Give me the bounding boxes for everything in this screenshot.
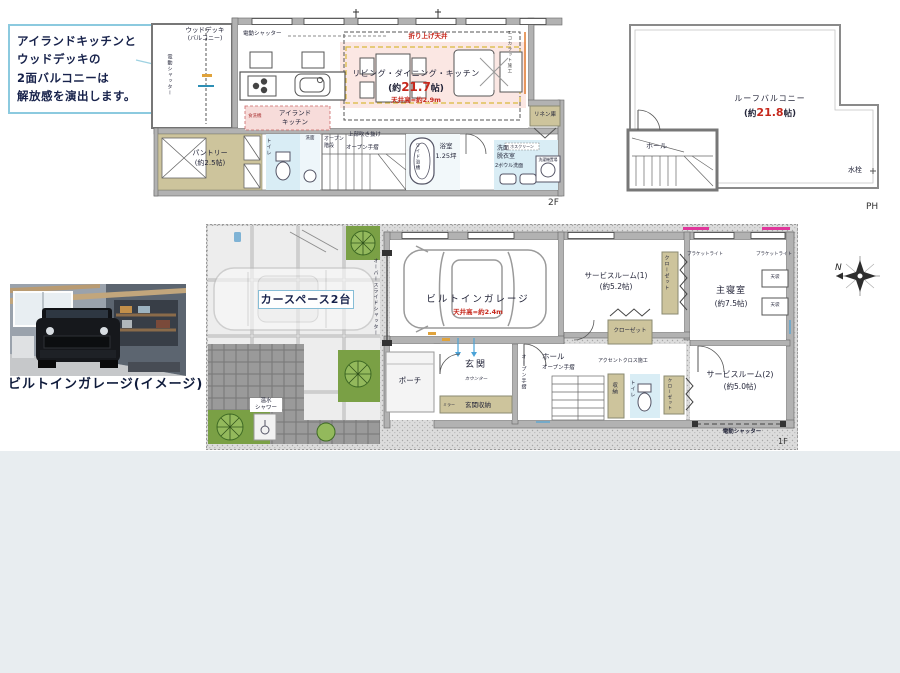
floor1-plan: カースペース2台 温水 シャワー オーバースライドシャッター ビルトインガレージ… bbox=[206, 224, 798, 450]
ldk-label: リビング・ダイニング・キッチン bbox=[326, 69, 506, 79]
storage-label: 収納 bbox=[610, 382, 617, 412]
toilet-1f-label: トイレ bbox=[629, 380, 636, 414]
closet-mid-label: クローゼット bbox=[608, 328, 652, 335]
penthouse-plan: ルーフバルコニー (約21.8帖) ホール 水栓 PH bbox=[622, 18, 892, 216]
hall-1f-label: ホール bbox=[542, 352, 565, 362]
open-stairs-label-1: オープン bbox=[324, 136, 344, 143]
ph-size-value: 21.8 bbox=[756, 106, 783, 119]
stairs-1f bbox=[552, 376, 604, 420]
callout-line-1: アイランドキッチンと bbox=[17, 32, 145, 50]
porch-label: ポーチ bbox=[388, 376, 432, 386]
master-bedroom-label: 主寝室 bbox=[700, 286, 762, 298]
suv-icon bbox=[36, 308, 120, 368]
ph-size-pre: (約 bbox=[744, 109, 756, 119]
roof-balcony-label: ルーフバルコニー bbox=[710, 94, 830, 104]
hot-shower-label-2: シャワー bbox=[250, 405, 282, 412]
callout-line-4: 解放感を演出します。 bbox=[17, 87, 145, 105]
ph-hall-label: ホール bbox=[646, 142, 667, 151]
window-markers bbox=[353, 9, 441, 18]
linen-label: リネン庫 bbox=[530, 112, 560, 119]
wood-deck-label: ウッドデッキ bbox=[174, 26, 236, 34]
coffered-ceiling-label: 折り上げ天井 bbox=[378, 32, 478, 40]
tenbukuro-label-2: 天袋 bbox=[762, 303, 788, 309]
callout-line-3: 2面バルコニーは bbox=[17, 69, 145, 87]
island-kitchen-label-1: アイランド bbox=[264, 109, 326, 117]
bracket-light-right-label: ブラケットライト bbox=[750, 252, 798, 258]
open-handrail-2f-label: オープン手摺 bbox=[346, 145, 379, 152]
wide-tub-label: ワイド浴槽 bbox=[414, 143, 420, 183]
open-stairs-label-2: 階段 bbox=[324, 143, 334, 150]
wash-nook-label: 洗面 bbox=[300, 136, 320, 142]
callout-box: アイランドキッチンと ウッドデッキの 2面バルコニーは 解放感を演出します。 bbox=[8, 24, 154, 114]
ph-size-post: 帖) bbox=[784, 109, 796, 119]
bracket-light-mark-left bbox=[683, 227, 709, 230]
ph-name-label: PH bbox=[866, 202, 878, 214]
pantry-label: パントリー bbox=[166, 149, 254, 158]
washroom-label-1: 洗面 bbox=[497, 145, 509, 153]
garage-ceiling-label: 天井高=約2.4m bbox=[418, 308, 538, 316]
roof-balcony-size: (約21.8帖) bbox=[710, 106, 830, 120]
bracket-light-mark-right bbox=[762, 227, 790, 230]
compass-icon: N bbox=[834, 254, 882, 298]
floor2-plan: ウッドデッキ (バルコニー) 電動シャッター 電動シャッター 折り上げ天井 リビ… bbox=[148, 6, 572, 211]
builtin-garage-label: ビルトインガレージ bbox=[418, 294, 538, 306]
shutter-left-label: 電動シャッター bbox=[166, 54, 173, 114]
compass-north-letter: N bbox=[835, 263, 842, 273]
dishwasher-label: 食洗機 bbox=[248, 114, 262, 120]
ph-stair-block bbox=[628, 130, 717, 190]
toilet-2f-label: トイレ bbox=[265, 138, 272, 178]
service-room2-label: サービスルーム(2) bbox=[692, 370, 788, 380]
master-bedroom-size: (約7.5帖) bbox=[696, 299, 766, 309]
overslide-shutter-label: オーバースライドシャッター bbox=[372, 258, 379, 358]
faucet-label: 水栓 bbox=[848, 166, 862, 175]
shower-icon bbox=[254, 414, 276, 440]
washroom-label-2: 脱衣室 bbox=[497, 153, 515, 161]
open-handrail-h-label: オープン手摺 bbox=[542, 365, 575, 372]
garage-room bbox=[390, 240, 558, 336]
ceiling-height-2f-label: 天井高=約2.9m bbox=[326, 96, 506, 104]
garage-photo-graphic bbox=[10, 284, 186, 376]
floor1-plan-graphic bbox=[206, 224, 798, 450]
service-room1-size: (約5.2帖) bbox=[566, 282, 666, 292]
bathroom-size-label: 1.25坪 bbox=[432, 152, 460, 160]
island-kitchen-label-2: キッチン bbox=[264, 118, 326, 126]
car-space-label: カースペース2台 bbox=[258, 290, 354, 309]
entrance-label: 玄関 bbox=[446, 360, 506, 372]
shutter-bottom-label: 電動シャッター bbox=[712, 429, 772, 436]
ldk-size-label: (約21.7帖) bbox=[326, 80, 506, 96]
garage-photo bbox=[10, 284, 186, 376]
tenbukuro-label-1: 天袋 bbox=[762, 275, 788, 281]
open-handrail-v-label: オープン手摺 bbox=[520, 354, 527, 400]
two-bowl-label: 2ボウル洗面 bbox=[495, 163, 523, 170]
pantry-size-label: (約2.5帖) bbox=[166, 159, 254, 168]
photo-caption: ビルトインガレージ(イメージ) bbox=[8, 377, 203, 394]
service-room2-size: (約5.0帖) bbox=[692, 382, 788, 392]
counter-label: カウンター bbox=[446, 377, 506, 383]
ecocarat-label: エコカラット施工 bbox=[506, 30, 512, 96]
entrance-storage-label: 玄関収納 bbox=[446, 401, 510, 409]
closet2-label: クローゼット bbox=[666, 378, 672, 414]
ldk-size-post: 帖) bbox=[431, 84, 444, 94]
bottom-background-band bbox=[0, 451, 900, 673]
washer-label: 洗濯機置場 bbox=[536, 158, 560, 163]
wood-deck-sub-label: (バルコニー) bbox=[174, 35, 236, 43]
callout-line-2: ウッドデッキの bbox=[17, 50, 145, 68]
closet1-label: クローゼット bbox=[663, 255, 670, 313]
service-room1-label: サービスルーム(1) bbox=[566, 271, 666, 281]
hosuclean-label: ホスクリーン bbox=[505, 144, 539, 149]
bathroom-label: 浴室 bbox=[432, 142, 460, 150]
floorplan-page: アイランドキッチンと ウッドデッキの 2面バルコニーは 解放感を演出します。 bbox=[0, 0, 900, 673]
bracket-light-left-label: ブラケットライト bbox=[680, 252, 730, 258]
void-above-label: 上部吹き抜け bbox=[348, 132, 381, 139]
ldk-size-value: 21.7 bbox=[401, 80, 431, 94]
ldk-size-pre: (約 bbox=[388, 84, 401, 94]
accent-cloth-label: アクセントクロス施工 bbox=[598, 358, 648, 365]
car-space-area bbox=[208, 226, 380, 444]
shutter-top-label: 電動シャッター bbox=[243, 31, 282, 38]
floor1-name-label: 1F bbox=[778, 437, 788, 447]
floor2-name-label: 2F bbox=[548, 198, 559, 210]
